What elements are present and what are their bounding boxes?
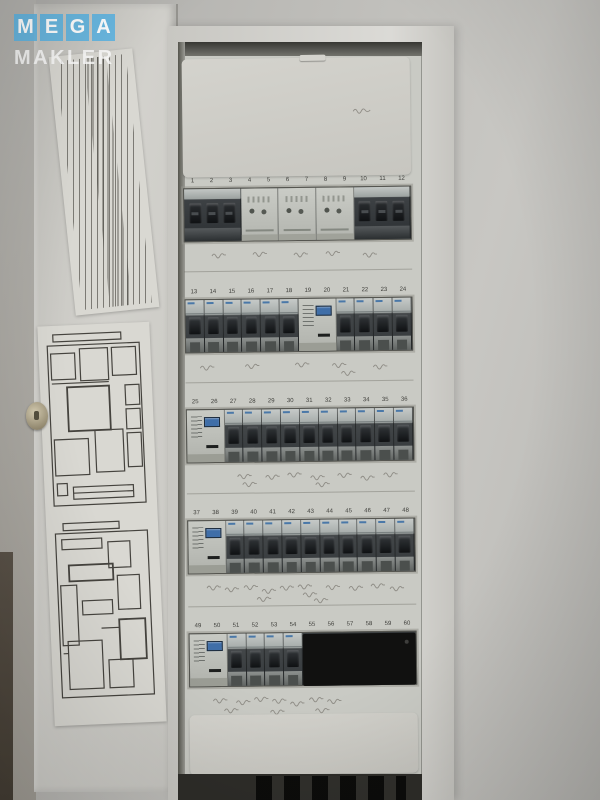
module-number: 60	[397, 620, 416, 629]
module-number: 32	[319, 397, 338, 406]
handwritten-note	[348, 578, 364, 596]
handwritten-note	[389, 579, 405, 597]
module-number: 44	[320, 508, 339, 517]
module-number: 14	[203, 288, 222, 297]
handwritten-note	[362, 245, 378, 263]
module-number: 51	[226, 622, 245, 631]
three-pole-breaker	[354, 187, 411, 240]
door-frame-shadow	[0, 552, 13, 800]
handwritten-note	[224, 580, 240, 598]
row-number-strip: 373839404142434445464748	[187, 507, 415, 519]
watermark-logo: MEGA MAKLER	[14, 14, 115, 70]
module-number: 33	[338, 396, 357, 405]
handwritten-note	[287, 465, 303, 483]
bottom-cover-plate	[190, 713, 419, 776]
module-number: 42	[282, 508, 301, 517]
module-number: 41	[263, 508, 282, 517]
module-number: 6	[278, 176, 297, 185]
module-number: 25	[186, 398, 205, 407]
watermark-mega: MEGA	[14, 14, 115, 41]
module-number: 38	[206, 509, 225, 518]
din-rail-modules	[186, 407, 415, 464]
energy-meter-module	[188, 521, 226, 573]
module-number: 27	[224, 398, 243, 407]
energy-meter-module	[187, 410, 225, 462]
circuit-breaker	[320, 520, 339, 572]
floor-plan-paper	[37, 322, 166, 727]
module-number: 56	[321, 621, 340, 630]
module-number: 52	[245, 621, 264, 630]
handwritten-labels	[185, 351, 413, 388]
row-number-strip: 495051525354555657585960	[188, 620, 416, 632]
handwritten-note	[241, 475, 257, 493]
module-number: 47	[377, 507, 396, 516]
module-number: 40	[244, 508, 263, 517]
module-number: 20	[317, 287, 336, 296]
din-rail-modules	[189, 631, 418, 688]
panel-rows: 1234567891011121314151617181920212223242…	[178, 42, 417, 44]
circuit-breaker	[243, 409, 262, 461]
circuit-breaker	[356, 408, 375, 460]
module-number: 19	[298, 287, 317, 296]
handwritten-note	[370, 576, 386, 594]
module-number: 45	[339, 507, 358, 516]
cabinet-door	[34, 4, 178, 792]
circuit-breaker	[265, 633, 284, 685]
energy-meter-module	[190, 634, 228, 686]
handwritten-note	[256, 589, 272, 607]
row-number-strip: 123456789101112	[183, 175, 411, 187]
circuit-breaker	[280, 299, 299, 351]
circuit-breaker	[225, 410, 244, 462]
watermark-letter-block: M	[14, 14, 37, 41]
circuit-breaker	[358, 519, 377, 571]
watermark-letter-block: E	[40, 14, 63, 41]
cable-area	[178, 774, 422, 800]
module-number: 9	[335, 175, 354, 184]
three-pole-breaker	[184, 189, 241, 242]
panel-frame: 1234567891011121314151617181920212223242…	[168, 26, 454, 800]
circuit-breaker	[261, 299, 280, 351]
top-cover-plate	[182, 57, 411, 178]
circuit-breaker	[262, 409, 281, 461]
handwritten-note	[313, 591, 329, 609]
row-number-strip: 252627282930313233343536	[186, 396, 414, 408]
meter-module	[316, 187, 354, 239]
handwritten-note	[244, 356, 260, 374]
circuit-breaker	[336, 298, 355, 350]
circuit-breaker	[376, 519, 395, 571]
circuit-breaker	[226, 521, 245, 573]
module-number: 54	[283, 621, 302, 630]
panel-interior: 1234567891011121314151617181920212223242…	[178, 42, 422, 800]
module-number: 15	[222, 288, 241, 297]
module-number: 11	[373, 175, 392, 184]
circuit-breaker	[337, 408, 356, 460]
handwritten-note	[199, 358, 215, 376]
circuit-breaker	[281, 409, 300, 461]
handwritten-note	[253, 689, 269, 707]
handwritten-labels	[184, 240, 412, 277]
module-number: 22	[355, 286, 374, 295]
handwritten-note	[279, 578, 295, 596]
floor-plan-lower	[51, 518, 161, 704]
module-number: 30	[281, 397, 300, 406]
module-number: 2	[202, 177, 221, 186]
module-number: 16	[241, 287, 260, 296]
handwritten-note	[314, 475, 330, 493]
door-lock	[26, 402, 48, 430]
module-number: 39	[225, 509, 244, 518]
module-number: 13	[184, 288, 203, 297]
circuit-breaker	[339, 519, 358, 571]
handwritten-labels	[188, 572, 416, 609]
module-number: 18	[279, 287, 298, 296]
handwritten-note	[352, 101, 372, 119]
floor-plan-upper	[43, 328, 153, 514]
cover-clip	[300, 55, 326, 61]
module-number: 24	[393, 286, 412, 295]
module-number: 31	[300, 397, 319, 406]
module-number: 49	[188, 622, 207, 631]
module-number: 1	[183, 177, 202, 186]
module-number: 55	[302, 621, 321, 630]
handwritten-note	[325, 243, 341, 261]
module-number: 36	[395, 396, 414, 405]
circuit-breaker	[227, 634, 246, 686]
panel-content: 1234567891011121314151617181920212223242…	[178, 42, 422, 800]
module-number: 53	[264, 621, 283, 630]
din-rail-modules	[185, 297, 414, 354]
energy-meter-module	[298, 299, 336, 351]
handwritten-note	[290, 694, 306, 712]
handwritten-note	[295, 355, 311, 373]
module-number: 35	[376, 396, 395, 405]
circuit-breaker	[355, 298, 374, 350]
module-number: 37	[187, 509, 206, 518]
breaker-row-1: 123456789101112	[183, 175, 412, 277]
watermark-makler: MAKLER	[14, 47, 115, 70]
circuit-breaker	[300, 409, 319, 461]
circuit-breaker	[394, 408, 413, 460]
circuit-breaker	[284, 633, 303, 685]
din-rail-modules	[187, 518, 416, 575]
circuit-breaker	[264, 520, 283, 572]
din-rail-modules	[183, 186, 412, 243]
module-number: 8	[316, 176, 335, 185]
module-number: 17	[260, 287, 279, 296]
watermark-letter-block: G	[66, 14, 89, 41]
handwritten-labels	[187, 461, 415, 498]
circuit-breaker	[374, 298, 393, 350]
circuit-breaker	[245, 520, 264, 572]
module-number: 12	[392, 175, 411, 184]
handwritten-note	[252, 244, 268, 262]
module-number: 3	[221, 177, 240, 186]
module-number: 10	[354, 175, 373, 184]
handwritten-note	[372, 357, 388, 375]
blank-cover-plate	[303, 633, 417, 686]
handwritten-note	[337, 465, 353, 483]
handwritten-note	[211, 246, 227, 264]
circuit-breaker	[204, 300, 223, 352]
handwritten-note	[383, 465, 399, 483]
module-number: 7	[297, 176, 316, 185]
module-number: 58	[359, 620, 378, 629]
module-number: 4	[240, 176, 259, 185]
handwritten-note	[293, 245, 309, 263]
circuit-schedule-paper	[49, 48, 160, 315]
meter-module	[241, 188, 279, 240]
circuit-breaker	[319, 409, 338, 461]
circuit-breaker	[393, 298, 412, 350]
module-number: 26	[205, 398, 224, 407]
module-number: 50	[207, 622, 226, 631]
module-number: 57	[340, 620, 359, 629]
module-number: 29	[262, 397, 281, 406]
handwritten-note	[264, 467, 280, 485]
circuit-breaker	[301, 520, 320, 572]
module-number: 48	[396, 507, 415, 516]
module-number: 21	[336, 286, 355, 295]
module-number: 23	[374, 286, 393, 295]
circuit-breaker	[223, 300, 242, 352]
photo-electrical-panel: 1234567891011121314151617181920212223242…	[0, 0, 600, 800]
watermark-letter-block: A	[92, 14, 115, 41]
circuit-breaker	[186, 300, 205, 352]
module-number: 46	[358, 507, 377, 516]
breaker-row-2: 131415161718192021222324	[184, 286, 413, 388]
circuit-breaker	[375, 408, 394, 460]
module-number: 59	[378, 620, 397, 629]
module-number: 5	[259, 176, 278, 185]
circuit-breaker	[282, 520, 301, 572]
handwritten-note	[360, 468, 376, 486]
module-number: 34	[357, 396, 376, 405]
handwritten-note	[340, 363, 356, 381]
circuit-breaker	[246, 633, 265, 685]
meter-module	[278, 188, 316, 240]
breaker-row-3: 252627282930313233343536	[186, 396, 415, 498]
breaker-row-4: 373839404142434445464748	[187, 507, 416, 609]
circuit-breaker	[395, 519, 414, 571]
breaker-row-5: 495051525354555657585960	[188, 620, 417, 722]
row-number-strip: 131415161718192021222324	[184, 286, 412, 298]
circuit-breaker	[242, 299, 261, 351]
module-number: 28	[243, 397, 262, 406]
handwritten-note	[206, 578, 222, 596]
module-number: 43	[301, 508, 320, 517]
